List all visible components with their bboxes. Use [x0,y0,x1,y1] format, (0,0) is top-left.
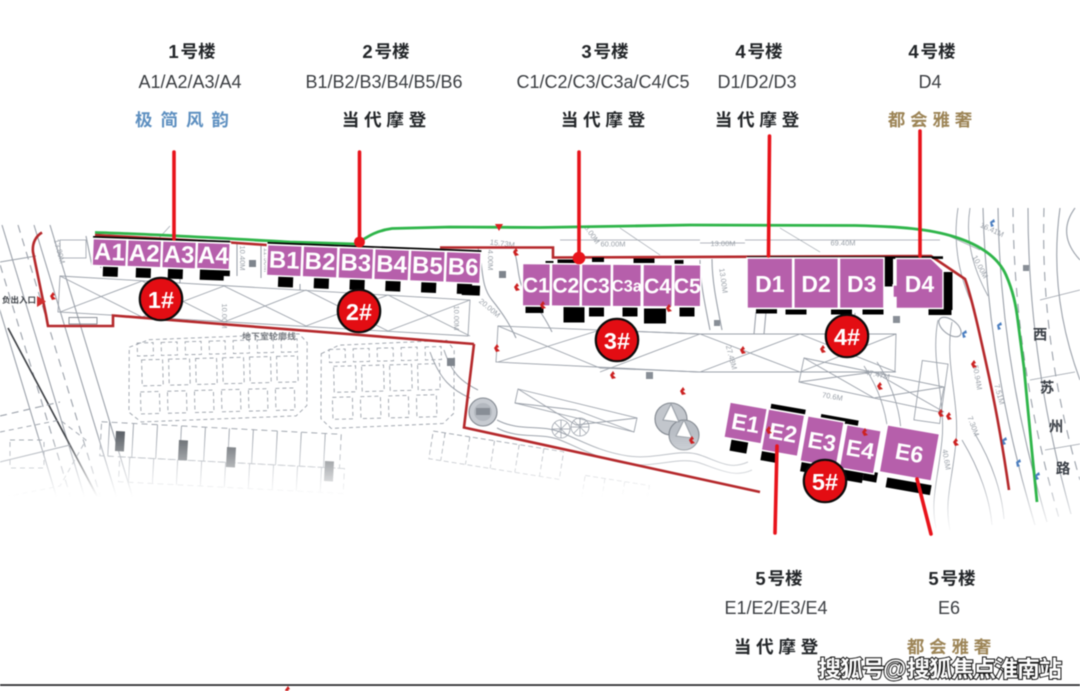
svg-text:E4: E4 [844,434,876,465]
svg-text:E6: E6 [938,598,960,618]
svg-text:E1: E1 [729,408,761,439]
svg-text:C1: C1 [523,274,550,297]
svg-text:13.00M: 13.00M [717,268,729,294]
svg-text:A3: A3 [163,241,195,269]
svg-text:A1/A2/A3/A4: A1/A2/A3/A4 [138,72,241,92]
svg-text:7.30M: 7.30M [966,415,982,438]
svg-text:A1: A1 [94,239,126,267]
svg-text:B1/B2/B3/B4/B5/B6: B1/B2/B3/B4/B5/B6 [305,72,462,92]
svg-text:E2: E2 [767,417,799,447]
svg-text:4.00M: 4.00M [486,250,495,271]
svg-text:50.94M: 50.94M [971,364,984,390]
svg-text:5: 5 [928,568,938,589]
svg-text:60.00M: 60.00M [600,240,625,249]
svg-text:E3: E3 [806,426,838,456]
svg-text:40.6M: 40.6M [940,449,952,471]
svg-text:B4: B4 [376,251,408,279]
svg-text:@: @ [883,656,906,683]
svg-text:C3a: C3a [612,277,643,295]
svg-text:D4: D4 [905,271,935,297]
svg-text:2#: 2# [346,299,372,325]
svg-text:C1/C2/C3/C3a/C4/C5: C1/C2/C3/C3a/C4/C5 [516,72,689,92]
svg-text:A2: A2 [128,240,160,268]
svg-text:1: 1 [168,41,178,62]
svg-text:10.40M: 10.40M [238,245,247,270]
svg-text:D3: D3 [847,271,876,297]
svg-text:B2: B2 [304,248,336,276]
svg-text:C2: C2 [552,274,579,297]
svg-text:B5: B5 [412,252,444,280]
svg-text:10.00M: 10.00M [452,305,461,330]
svg-text:5#: 5# [812,469,838,495]
svg-text:D2: D2 [801,271,830,297]
svg-text:13.80M: 13.80M [52,238,67,265]
svg-text:D4: D4 [918,72,941,92]
svg-text:D1/D2/D3: D1/D2/D3 [717,72,796,92]
svg-text:2: 2 [362,41,372,62]
svg-text:5: 5 [755,568,765,589]
svg-text:3: 3 [581,41,591,62]
svg-text:1#: 1# [148,287,174,313]
svg-text:13.00M: 13.00M [710,239,735,248]
svg-text:B6: B6 [447,253,479,281]
svg-text:D1: D1 [755,271,785,297]
svg-text:A4: A4 [198,242,230,270]
svg-text:C5: C5 [674,275,701,298]
svg-text:3#: 3# [604,328,630,354]
svg-text:E6: E6 [893,438,925,468]
svg-text:69.40M: 69.40M [830,239,855,248]
svg-text:E1/E2/E3/E4: E1/E2/E3/E4 [724,598,827,618]
svg-text:C3: C3 [583,275,610,298]
svg-text:4#: 4# [834,324,860,350]
svg-text:4: 4 [735,41,746,62]
svg-text:C4: C4 [644,275,671,298]
svg-text:B3: B3 [340,249,372,277]
svg-text:4: 4 [908,41,919,62]
svg-text:70.6M: 70.6M [821,390,843,402]
svg-text:B1: B1 [268,247,300,275]
